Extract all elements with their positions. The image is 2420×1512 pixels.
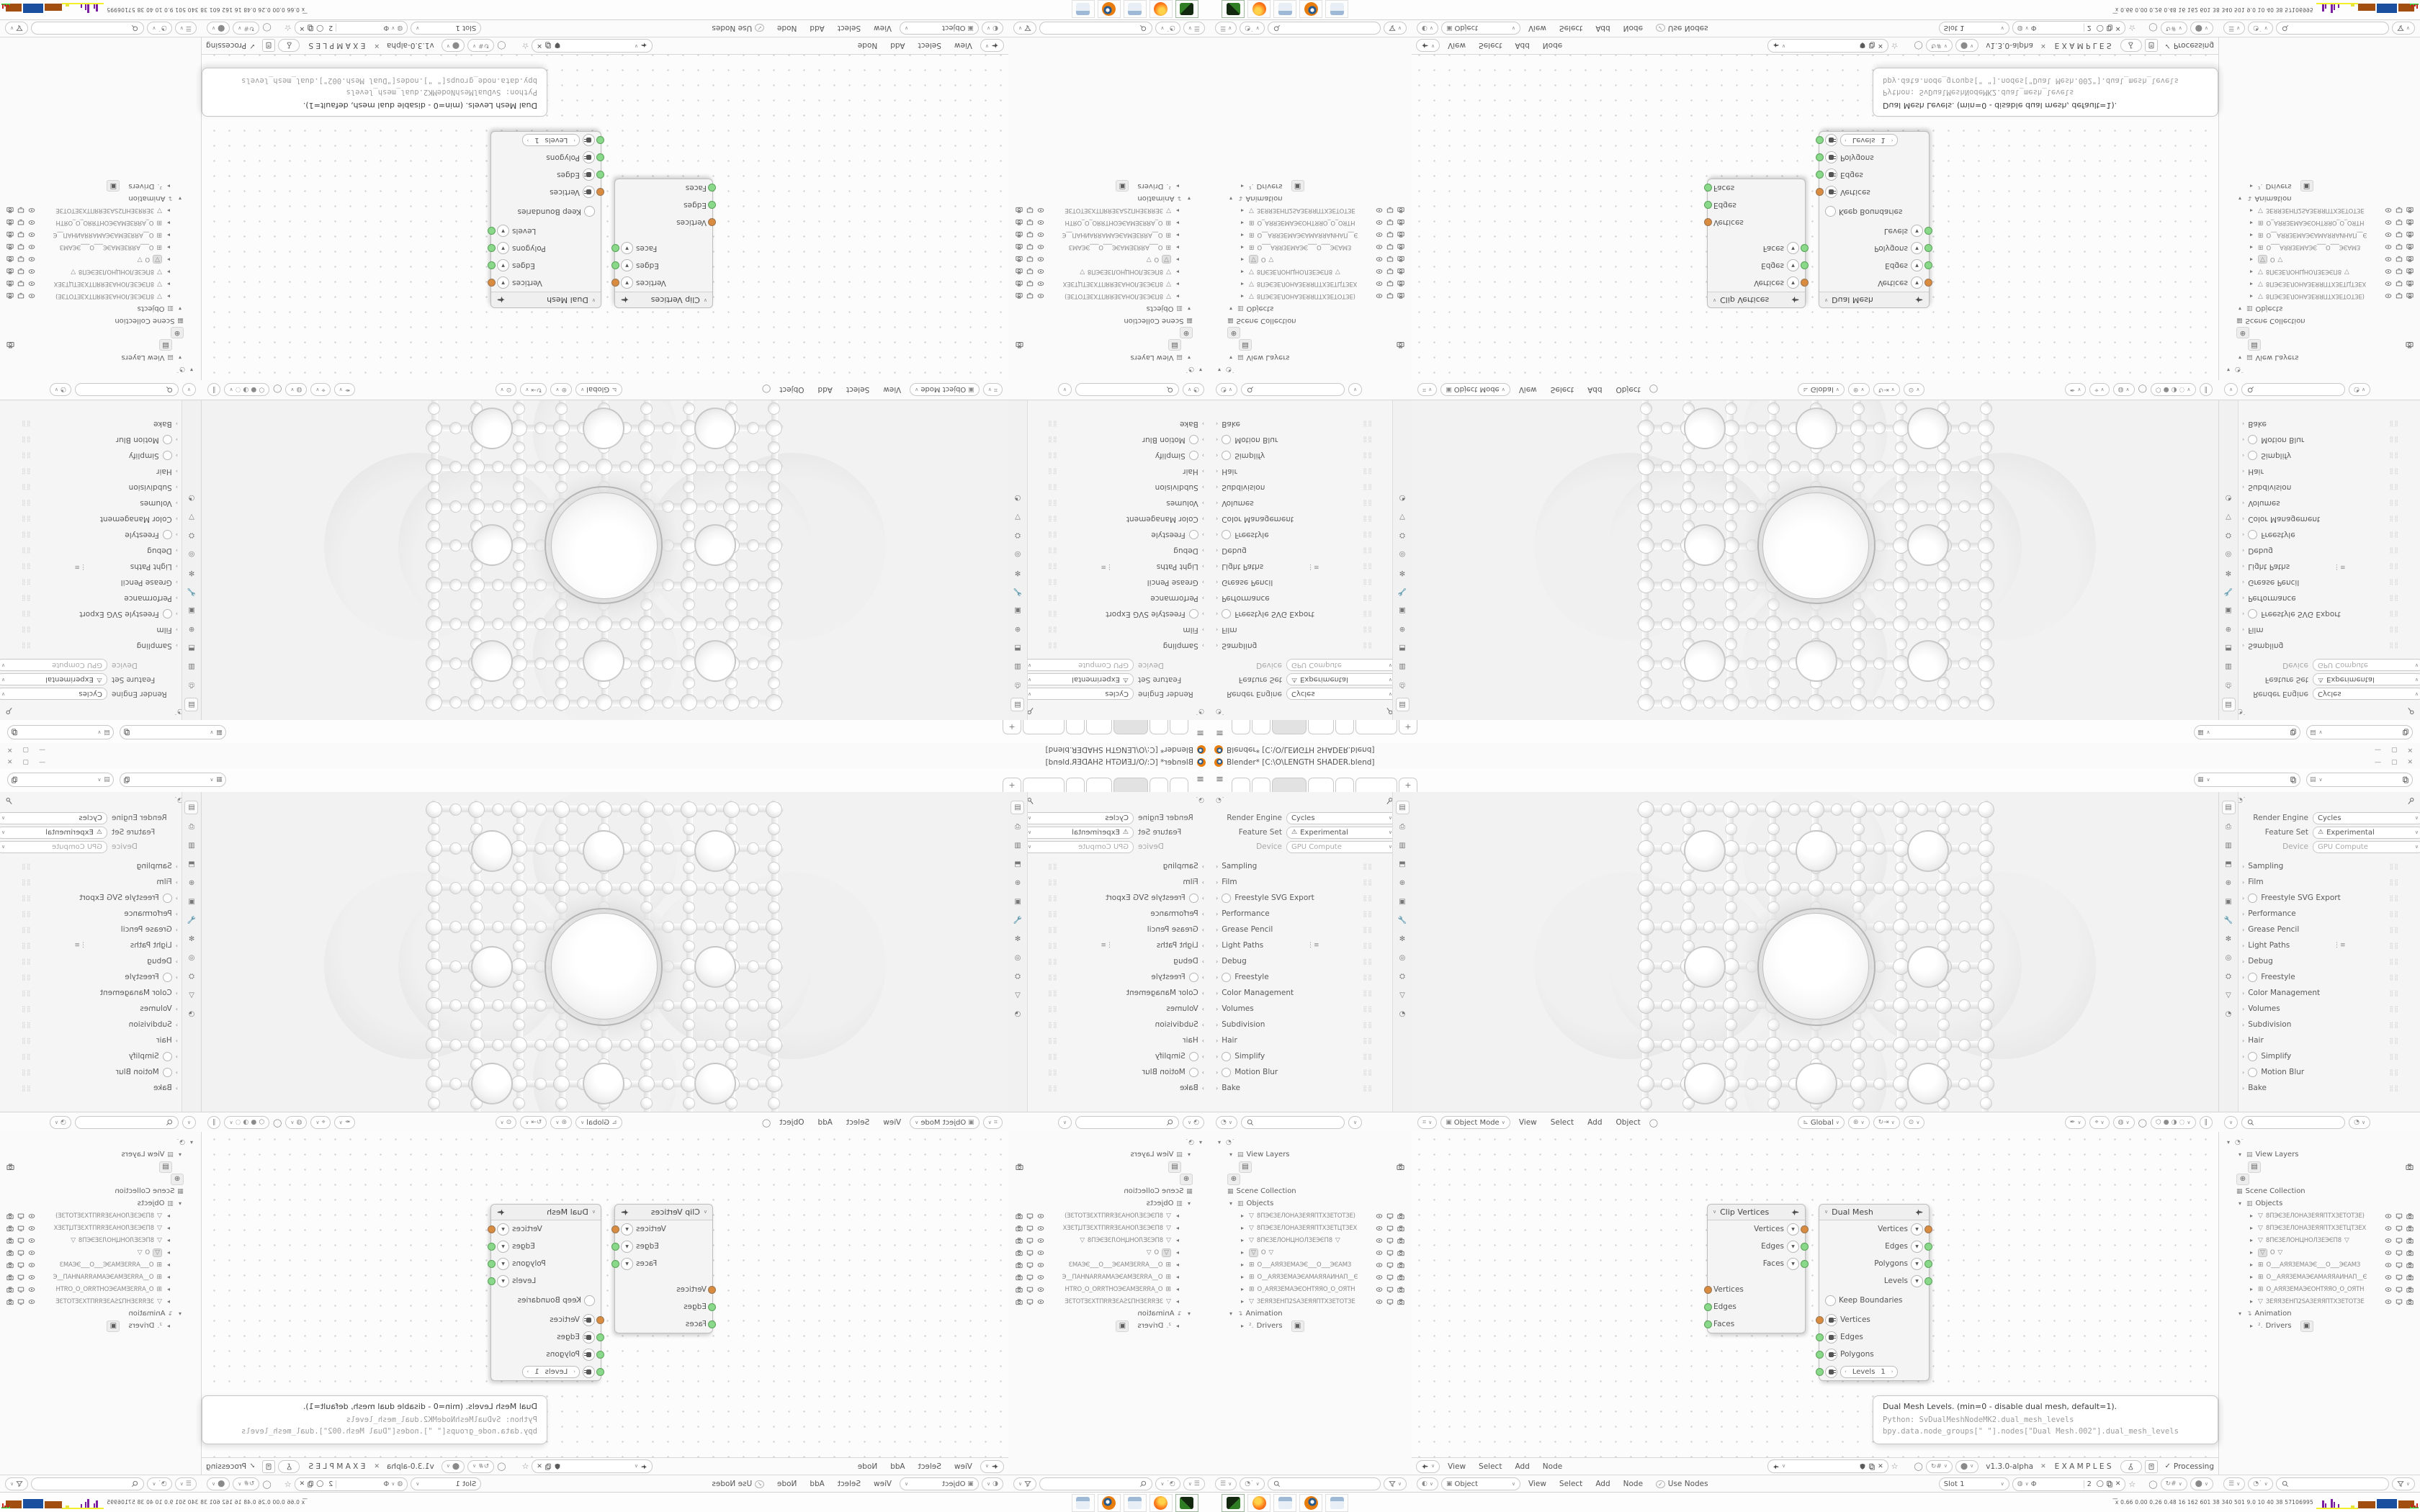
expand-icon[interactable]: ▸ xyxy=(2248,1286,2255,1292)
menu-object[interactable]: Object xyxy=(1616,1118,1641,1127)
props-tab-scene[interactable]: ⬒ xyxy=(186,642,198,654)
orientation-dropdown[interactable]: ⊾Global∨ xyxy=(1798,1116,1845,1129)
levels-spinner[interactable]: ‹Levels1› xyxy=(1840,1366,1898,1378)
output-dropdown[interactable]: ▼ xyxy=(1911,243,1923,255)
flask-button[interactable] xyxy=(2120,1460,2142,1473)
expand-icon[interactable]: ▸ xyxy=(165,1323,172,1329)
menu-view[interactable]: View xyxy=(1448,42,1466,50)
props-section-simplify[interactable]: ›Simplify⣿⣿ xyxy=(1047,448,1204,464)
menu-node[interactable]: Node xyxy=(1623,1480,1643,1488)
outliner-view-layer-button[interactable]: ▤ xyxy=(2,339,172,351)
menu-add[interactable]: Add xyxy=(890,42,905,50)
output-dropdown[interactable]: ▼ xyxy=(1911,277,1923,289)
input-socket[interactable] xyxy=(1816,171,1824,179)
field-value-dropdown[interactable]: Cycles∨ xyxy=(1286,688,1397,701)
menu-view[interactable]: View xyxy=(874,24,892,32)
material-slot-dropdown[interactable]: Slot 1∨ xyxy=(411,22,481,35)
props-section-volumes[interactable]: ›Volumes⣿⣿ xyxy=(1047,495,1204,511)
output-dropdown[interactable]: ▼ xyxy=(1911,1241,1923,1253)
props-tab-material[interactable]: ◔ xyxy=(1012,1008,1024,1020)
field-value-dropdown[interactable]: GPU Compute∨ xyxy=(1286,841,1397,853)
shader-editor-type-button[interactable]: ◐∨ xyxy=(1417,22,1438,35)
props-section-subdivision[interactable]: ›Subdivision⣿⣿ xyxy=(1216,480,1373,495)
outliner-object-row[interactable]: ▸▽8ПЭЄЗЕЛОНАЗЕЯЯПТХЗЕТОТЗЕ) xyxy=(2248,1210,2418,1222)
expand-icon[interactable]: ▸ xyxy=(165,1286,172,1292)
editor-nav-dropdown[interactable]: ↻#∨ xyxy=(233,1477,259,1490)
expand-icon[interactable]: ▸ xyxy=(1239,232,1246,238)
expand-icon[interactable]: ▸ xyxy=(1174,281,1181,287)
outliner-object-row[interactable]: ▸⊞O__АЯЯЗЕМАЭЄАМАЯЯАИНАП__Є xyxy=(2,229,172,241)
material-slot-dropdown[interactable]: Slot 1∨ xyxy=(411,1477,481,1490)
props-section-freestyle[interactable]: ›Freestyle⣿⣿ xyxy=(1216,527,1373,543)
props-tab-physics[interactable]: ◎ xyxy=(1397,548,1409,560)
display-mode-dropdown[interactable]: ☰∨ xyxy=(1215,1477,1237,1490)
menu-add[interactable]: Add xyxy=(890,1462,905,1471)
outliner-object-row[interactable]: ▸▽ЗЕЯЯЗЕНП2SАЗЕЯЯПТХЗЕТОТЗЕ xyxy=(2248,1295,2418,1308)
section-checkbox[interactable] xyxy=(163,451,172,461)
outliner-scene-row[interactable]: ▾◔˙ xyxy=(1011,1136,1204,1148)
menu-select[interactable]: Select xyxy=(918,42,941,50)
expand-icon[interactable]: ▸ xyxy=(165,1237,172,1243)
outliner-filter-type-button[interactable]: ◔˙∨ xyxy=(2248,1477,2272,1490)
unlink-icon[interactable]: ✕ xyxy=(300,1480,305,1488)
mode-dropdown[interactable]: ▣Object Mode∨ xyxy=(1440,383,1510,396)
field-value-dropdown[interactable]: ⚠Experimental∨ xyxy=(2313,674,2420,686)
outliner-animation-branch[interactable]: ▾↴Animation xyxy=(2236,192,2418,204)
props-section-film[interactable]: ›Film⣿⣿ xyxy=(2242,622,2399,638)
expand-icon[interactable]: ▸ xyxy=(2248,293,2255,300)
props-section-film[interactable]: ›Film⣿⣿ xyxy=(21,622,178,638)
proportional-edit[interactable]: ↻⇥∨ xyxy=(520,1116,547,1129)
node-dual-mesh[interactable]: ∨Dual MeshVertices▼Edges▼Polygons▼Levels… xyxy=(1819,131,1930,308)
close-button[interactable]: ✕ xyxy=(7,759,13,766)
props-tab-world[interactable]: ⊕ xyxy=(1012,877,1024,889)
outliner-view-layers[interactable]: ▾▤View Layers xyxy=(2,351,184,364)
props-tab-scene[interactable]: ⬒ xyxy=(2223,642,2235,654)
props-tab-output[interactable]: ⎙ xyxy=(186,821,198,833)
props-tab-physics[interactable]: ◎ xyxy=(2223,548,2235,560)
output-socket[interactable] xyxy=(611,279,619,287)
material-selector[interactable]: ◍∨Φ2◯✕ xyxy=(2012,1477,2126,1491)
workspace-tab[interactable] xyxy=(1149,778,1168,792)
snap-circle[interactable]: ◯ xyxy=(497,41,506,50)
props-tab-object[interactable]: ▣ xyxy=(1397,604,1409,616)
props-section-debug[interactable]: ›Debug⣿⣿ xyxy=(21,543,178,559)
workspace-tab[interactable] xyxy=(1335,778,1354,792)
outliner-objects-branch[interactable]: ▾▥Objects xyxy=(1227,302,1409,315)
log-button[interactable] xyxy=(262,40,275,53)
props-section-sampling[interactable]: ›Sampling⣿⣿ xyxy=(2242,858,2399,874)
props-section-film[interactable]: ›Film⣿⣿ xyxy=(1047,622,1204,638)
field-value-dropdown[interactable]: Cycles∨ xyxy=(1286,812,1397,824)
props-tab-object-data[interactable]: ▽ xyxy=(186,510,198,523)
view-layer-combo[interactable]: ▤∨ xyxy=(2306,725,2413,739)
section-checkbox[interactable] xyxy=(2248,451,2257,461)
props-tab-particles[interactable]: ✻ xyxy=(2223,933,2235,945)
options-circle[interactable]: ◯ xyxy=(762,385,771,395)
new-workspace-tab[interactable]: + xyxy=(1399,720,1417,734)
pin-tree-toggle[interactable]: ☆ xyxy=(1891,41,1899,50)
expand-icon[interactable]: ▸ xyxy=(2248,1323,2255,1329)
new-material-icon[interactable]: ◯ xyxy=(316,1480,323,1488)
props-section-performance[interactable]: ›Performance⣿⣿ xyxy=(1047,906,1204,922)
node-dual-mesh[interactable]: ∨Dual MeshVertices▼Edges▼Polygons▼Levels… xyxy=(1819,1204,1930,1381)
outliner-drivers-row[interactable]: ▸²․Drivers▣ xyxy=(1011,180,1181,192)
outliner-world-button[interactable]: ⊕ xyxy=(1011,1173,1193,1185)
workspace-tab[interactable] xyxy=(1170,778,1188,792)
viewport-editor-type-button[interactable]: ⌗∨ xyxy=(983,1116,1003,1129)
expand-icon[interactable]: ▸ xyxy=(1174,293,1181,300)
input-socket[interactable] xyxy=(1816,153,1824,161)
output-socket[interactable] xyxy=(488,1260,496,1268)
expand-icon[interactable]: ▸ xyxy=(165,1274,172,1280)
drivers-button[interactable]: ▣ xyxy=(1291,181,1304,192)
taskbar-app-blender[interactable] xyxy=(1098,1494,1121,1512)
pin-tree-toggle[interactable]: ☆ xyxy=(1891,1462,1899,1471)
section-checkbox[interactable] xyxy=(1222,1068,1231,1077)
outliner-scene-collection[interactable]: ▦Scene Collection xyxy=(2,315,184,327)
section-checkbox[interactable] xyxy=(163,894,172,903)
props-tab-output[interactable]: ⎙ xyxy=(1397,821,1409,833)
material-slot-dropdown[interactable]: Slot 1∨ xyxy=(1939,22,2009,35)
props-section-volumes[interactable]: ›Volumes⣿⣿ xyxy=(2242,495,2399,511)
output-socket[interactable] xyxy=(488,244,496,252)
properties-editor-type-button[interactable]: ◔∨ xyxy=(50,383,71,396)
node-header[interactable]: ∨Dual Mesh xyxy=(491,292,601,307)
proportional-edit[interactable]: ↻⇥∨ xyxy=(1873,383,1900,396)
input-socket[interactable] xyxy=(596,136,604,144)
display-dropdown[interactable]: ⬤∨ xyxy=(207,22,230,35)
drivers-button[interactable]: ▣ xyxy=(2300,1320,2313,1332)
expand-icon[interactable]: ▸ xyxy=(1239,1286,1246,1292)
close-icon[interactable]: ✕ xyxy=(1878,42,1883,50)
input-socket[interactable] xyxy=(708,218,716,226)
expand-icon[interactable]: ▸ xyxy=(165,1261,172,1268)
scene-combo[interactable]: ▦∨ xyxy=(2194,725,2300,739)
expand-icon[interactable]: ▸ xyxy=(1174,1237,1181,1243)
overlays-dropdown[interactable]: ◍∨ xyxy=(2113,1116,2135,1129)
outliner-view-layers[interactable]: ▾▤View Layers xyxy=(2,1148,184,1161)
image-icon[interactable]: ▤ xyxy=(1239,340,1252,351)
expand-icon[interactable]: ▸ xyxy=(165,256,172,263)
props-section-light-paths[interactable]: ›Light Paths⋮≡⣿⣿ xyxy=(21,937,178,953)
input-socket[interactable] xyxy=(1704,218,1712,226)
outliner-filter-button[interactable]: ∨ xyxy=(5,22,28,35)
props-tab-render[interactable]: ▤ xyxy=(1011,801,1025,814)
expand-icon[interactable]: ▸ xyxy=(1174,269,1181,275)
props-section-film[interactable]: ›Film⣿⣿ xyxy=(21,874,178,890)
props-section-film[interactable]: ›Film⣿⣿ xyxy=(1216,622,1373,638)
input-socket[interactable] xyxy=(708,1320,716,1328)
menu-node[interactable]: Node xyxy=(1623,24,1643,32)
props-section-color-management[interactable]: ›Color Management⣿⣿ xyxy=(2242,511,2399,527)
output-dropdown[interactable]: ▼ xyxy=(1787,1223,1799,1236)
properties-filter-button[interactable]: ∨ xyxy=(2224,383,2238,396)
props-tab-material[interactable]: ◔ xyxy=(186,492,198,504)
use-nodes-toggle[interactable]: ✓Use Nodes xyxy=(1656,24,1708,32)
unlink-icon[interactable]: ✕ xyxy=(374,42,380,50)
properties-search-input[interactable] xyxy=(1075,1116,1179,1129)
props-section-grease-pencil[interactable]: ›Grease Pencil⣿⣿ xyxy=(21,922,178,937)
shading-icon[interactable]: ◌ xyxy=(2179,1119,2185,1126)
props-section-volumes[interactable]: ›Volumes⣿⣿ xyxy=(1216,1001,1373,1017)
menu-add[interactable]: Add xyxy=(817,1118,832,1127)
output-dropdown[interactable]: ▼ xyxy=(621,1258,633,1270)
section-checkbox[interactable] xyxy=(1189,1068,1198,1077)
section-checkbox[interactable] xyxy=(163,610,172,619)
socket-menu-button[interactable] xyxy=(1825,1331,1837,1344)
taskbar-app-firefox[interactable] xyxy=(1149,0,1173,18)
props-tab-view-layer[interactable]: ▥ xyxy=(2223,660,2235,672)
props-section-bake[interactable]: ›Bake⣿⣿ xyxy=(21,1080,178,1096)
outliner-object-row[interactable]: ▸⊞O_АЯЯЗЕМАЭЄОНТЯЯО_O_ОЯТН xyxy=(1011,217,1181,229)
node-header[interactable]: ∨Clip Vertices xyxy=(1708,292,1805,307)
props-section-color-management[interactable]: ›Color Management⣿⣿ xyxy=(21,511,178,527)
use-nodes-toggle[interactable]: ✓Use Nodes xyxy=(1656,1480,1708,1488)
output-socket[interactable] xyxy=(611,261,619,269)
outliner-object-row[interactable]: ▸▽8ПЭЄЗЕЛОНАЗЕЯЯПТХЗЕТЦТЗЕХ xyxy=(2,278,172,290)
world-icon[interactable]: ⊕ xyxy=(1227,1174,1240,1185)
material-selector[interactable]: ◍∨Φ2◯✕ xyxy=(295,22,408,35)
levels-spinner[interactable]: ‹Levels1› xyxy=(1840,135,1898,147)
props-section-sampling[interactable]: ›Sampling⣿⣿ xyxy=(21,858,178,874)
shader-mode-dropdown[interactable]: ▣Object∨ xyxy=(900,1477,979,1490)
node-clip-vertices[interactable]: ∨Clip VerticesVertices▼Edges▼Faces▼Verti… xyxy=(1707,179,1806,308)
input-socket[interactable] xyxy=(596,1368,604,1376)
props-tab-object-data[interactable]: ▽ xyxy=(2223,510,2235,523)
props-section-color-management[interactable]: ›Color Management⣿⣿ xyxy=(1047,985,1204,1001)
shading-icon[interactable]: ◑ xyxy=(2172,386,2177,393)
input-socket[interactable] xyxy=(1816,1351,1824,1359)
expand-icon[interactable]: ▸ xyxy=(1239,281,1246,287)
shader-mode-dropdown[interactable]: ▣Object∨ xyxy=(1441,1477,1520,1490)
props-tab-view-layer[interactable]: ▥ xyxy=(1397,660,1409,672)
properties-editor-type-button[interactable]: ◔∨ xyxy=(2349,383,2370,396)
display-mode-dropdown[interactable]: ☰∨ xyxy=(1215,22,1237,35)
maximize-button[interactable]: ▢ xyxy=(23,746,30,753)
close-button[interactable]: ✕ xyxy=(7,746,13,753)
expand-icon[interactable]: ▸ xyxy=(1174,256,1181,263)
overlays-dropdown[interactable]: ◍∨ xyxy=(2113,383,2135,396)
field-value-dropdown[interactable]: GPU Compute∨ xyxy=(1286,660,1397,672)
workspace-tab[interactable] xyxy=(1335,720,1354,734)
menu-view[interactable]: View xyxy=(1519,385,1537,394)
props-tab-output[interactable]: ⎙ xyxy=(1397,679,1409,691)
section-checkbox[interactable] xyxy=(1222,610,1231,619)
output-socket[interactable] xyxy=(1924,1277,1932,1285)
props-tab-output[interactable]: ⎙ xyxy=(2223,821,2235,833)
input-socket[interactable] xyxy=(1704,1303,1712,1311)
shading-icon[interactable]: ● xyxy=(251,1119,256,1126)
outliner-object-row[interactable]: ▸▽8ПЭЄЗЕЛОНАЗЕЯЯПТХЗЕТОТЗЕ) xyxy=(2,290,172,302)
editor-nav-dropdown[interactable]: ↻#∨ xyxy=(1926,1460,1953,1473)
props-tab-render[interactable]: ▤ xyxy=(185,698,199,711)
props-tab-physics[interactable]: ◎ xyxy=(186,548,198,560)
field-value-dropdown[interactable]: GPU Compute∨ xyxy=(0,660,107,672)
props-section-light-paths[interactable]: ›Light Paths⋮≡⣿⣿ xyxy=(2242,937,2399,953)
output-dropdown[interactable]: ▼ xyxy=(621,260,633,272)
outliner-view-layers[interactable]: ▾▤View Layers xyxy=(1227,1148,1409,1161)
examples-menu[interactable]: E X A M P L E S xyxy=(2055,42,2112,50)
props-tab-object[interactable]: ▣ xyxy=(1012,896,1024,908)
expand-icon[interactable]: ▸ xyxy=(1239,293,1246,300)
output-dropdown[interactable]: ▼ xyxy=(1911,260,1923,272)
menu-view[interactable]: View xyxy=(1528,1480,1546,1488)
maximize-button[interactable]: ▢ xyxy=(2391,746,2398,753)
properties-search-input[interactable] xyxy=(75,383,179,396)
outliner-filter-type-button[interactable]: ◔˙∨ xyxy=(1155,22,1180,35)
output-socket[interactable] xyxy=(1801,1243,1809,1251)
node-header[interactable]: ∨Clip Vertices xyxy=(615,1205,712,1220)
menu-object[interactable]: Object xyxy=(779,385,804,394)
close-icon[interactable]: ✕ xyxy=(537,1463,542,1470)
node-editor-type-button[interactable]: ∨ xyxy=(980,1460,1004,1473)
props-section-film[interactable]: ›Film⣿⣿ xyxy=(2242,874,2399,890)
props-section-subdivision[interactable]: ›Subdivision⣿⣿ xyxy=(1047,1017,1204,1032)
mode-dropdown[interactable]: ▣Object Mode∨ xyxy=(910,383,980,396)
socket-menu-button[interactable] xyxy=(1825,1349,1837,1361)
menu-view[interactable]: View xyxy=(1519,1118,1537,1127)
pivot-dropdown[interactable]: ⊙∨ xyxy=(1904,383,1925,396)
outliner-object-row[interactable]: ▸⊞O__АЯЯЗЕМАЭЄАМАЯЯАИНАП__Є xyxy=(1011,1271,1181,1283)
expand-icon[interactable]: ▸ xyxy=(1174,1286,1181,1292)
node-header[interactable]: ∨Dual Mesh xyxy=(1819,292,1929,307)
outliner-view-layer-button[interactable]: ▤ xyxy=(1011,1161,1181,1173)
input-socket[interactable] xyxy=(1816,1368,1824,1376)
image-icon[interactable]: ▤ xyxy=(1239,1161,1252,1173)
new-material-icon[interactable]: ◯ xyxy=(316,24,323,32)
section-checkbox[interactable] xyxy=(163,973,172,982)
drivers-button[interactable]: ▣ xyxy=(1116,181,1129,192)
props-tab-view-layer[interactable]: ▥ xyxy=(1397,840,1409,852)
menu-select[interactable]: Select xyxy=(918,1462,941,1471)
properties-filter-button[interactable]: ∨ xyxy=(1348,383,1362,396)
props-tab-world[interactable]: ⊕ xyxy=(1012,623,1024,635)
socket-menu-button[interactable] xyxy=(1825,135,1837,147)
props-tab-material[interactable]: ◔ xyxy=(1397,492,1409,504)
outliner-object-row[interactable]: ▸▽O▽ xyxy=(1239,1246,1409,1259)
menu-node[interactable]: Node xyxy=(1543,42,1562,50)
node-editor[interactable]: Dual Mesh Levels. (min=0 - disable dual … xyxy=(202,1132,1008,1475)
taskbar-app-calculator[interactable] xyxy=(1325,0,1348,18)
section-checkbox[interactable] xyxy=(163,436,172,445)
output-socket[interactable] xyxy=(611,1243,619,1251)
outliner-object-row[interactable]: ▸▽8ПЭЄЗЕЛОНАЗЕЯЯПТХЗЕТЦТЗЕХ xyxy=(2248,278,2418,290)
view-layer-combo[interactable]: ▤∨ xyxy=(7,773,114,787)
taskbar-app-gpu-monitor[interactable] xyxy=(1175,0,1198,18)
props-tab-particles[interactable]: ✻ xyxy=(1397,567,1409,579)
outliner-objects-branch[interactable]: ▾▥Objects xyxy=(1227,1197,1409,1210)
gizmo-dropdown[interactable]: ⌖∨ xyxy=(2089,1116,2109,1129)
pause-button[interactable]: ‖ xyxy=(207,1116,221,1129)
output-socket[interactable] xyxy=(1801,279,1809,287)
section-checkbox[interactable] xyxy=(163,1052,172,1061)
props-tab-particles[interactable]: ✻ xyxy=(186,933,198,945)
menu-icon[interactable]: ≡ xyxy=(1216,727,1224,738)
node-editor[interactable]: Dual Mesh Levels. (min=0 - disable dual … xyxy=(202,37,1008,380)
visibility-dropdown[interactable]: ✒∨ xyxy=(334,1116,356,1129)
close-button[interactable]: ✕ xyxy=(2407,746,2413,753)
socket-menu-button[interactable] xyxy=(583,152,595,164)
outliner-drivers-row[interactable]: ▸²․Drivers▣ xyxy=(2,1320,172,1332)
props-section-motion-blur[interactable]: ›Motion Blur⣿⣿ xyxy=(21,1064,178,1080)
outliner-object-row[interactable]: ▸⊞O___АЯЯЗЕМАЭЄ___O___ЭЄАМЗ xyxy=(1239,1259,1409,1271)
props-section-freestyle-svg-export[interactable]: ›Freestyle SVG Export⣿⣿ xyxy=(1047,890,1204,906)
outliner-search-input[interactable] xyxy=(1039,1477,1152,1490)
material-selector[interactable]: ◍∨Φ2◯✕ xyxy=(295,1477,408,1491)
section-checkbox[interactable] xyxy=(1222,973,1231,982)
shader-editor-type-button[interactable]: ◐∨ xyxy=(982,1477,1003,1490)
outliner-object-row[interactable]: ▸▽8ПЄЗЕЛОНЦНОЛЗЕЭЄП8▽ xyxy=(2,266,172,278)
outliner-search-input[interactable] xyxy=(1268,1477,1381,1490)
snap-circle[interactable]: ◯ xyxy=(2148,24,2157,33)
props-section-grease-pencil[interactable]: ›Grease Pencil⣿⣿ xyxy=(1047,575,1204,590)
shader-editor-type-button[interactable]: ◐∨ xyxy=(982,22,1003,35)
display-mode-dropdown[interactable]: ☰∨ xyxy=(175,22,197,35)
input-socket[interactable] xyxy=(1816,1333,1824,1341)
props-tab-scene[interactable]: ⬒ xyxy=(2223,858,2235,870)
workspace-tab[interactable] xyxy=(1308,778,1334,792)
props-tab-render[interactable]: ▤ xyxy=(1396,801,1410,814)
properties-search-input[interactable] xyxy=(1241,383,1345,396)
mode-dropdown[interactable]: ▣Object Mode∨ xyxy=(910,1116,980,1129)
menu-object[interactable]: Object xyxy=(779,1118,804,1127)
outliner-object-row[interactable]: ▸▽8ПЄЗЕЛОНЦНОЛЗЕЭЄП8▽ xyxy=(2248,266,2418,278)
outliner-filter-type-button[interactable]: ◔˙∨ xyxy=(2248,22,2272,35)
outliner-view-layer-button[interactable]: ▤ xyxy=(2,1161,172,1173)
props-section-motion-blur[interactable]: ›Motion Blur⣿⣿ xyxy=(1047,432,1204,448)
drivers-button[interactable]: ▣ xyxy=(1116,1320,1129,1332)
shading-icon[interactable]: ◑ xyxy=(243,1119,248,1126)
outliner-search-input[interactable] xyxy=(1268,22,1381,35)
menu-select[interactable]: Select xyxy=(1479,42,1502,50)
section-checkbox[interactable] xyxy=(2248,973,2257,982)
visibility-dropdown[interactable]: ✒∨ xyxy=(334,383,356,396)
props-section-debug[interactable]: ›Debug⣿⣿ xyxy=(1047,543,1204,559)
image-icon[interactable]: ▤ xyxy=(1168,1161,1181,1173)
outliner-filter-type-button[interactable]: ◔˙∨ xyxy=(1240,22,1264,35)
node-tree-selector[interactable]: ∨✕ xyxy=(1767,1459,1888,1473)
expand-icon[interactable]: ▸ xyxy=(2248,1298,2255,1305)
props-tab-modifiers[interactable]: 🔧 xyxy=(186,914,198,927)
outliner-objects-branch[interactable]: ▾▥Objects xyxy=(2,1197,184,1210)
props-tab-object-data[interactable]: ▽ xyxy=(1012,989,1024,1002)
node-tree-selector[interactable]: ∨✕ xyxy=(532,39,653,53)
outliner-object-row[interactable]: ▸⊞O___АЯЯЗЕМАЭЄ___O___ЭЄАМЗ xyxy=(2248,1259,2418,1271)
close-icon[interactable]: ✕ xyxy=(1878,1463,1883,1470)
expand-icon[interactable]: ▸ xyxy=(1239,1274,1246,1280)
properties-editor-type-button[interactable]: ◔∨ xyxy=(1183,1116,1204,1129)
outliner-object-row[interactable]: ▸▽ЗЕЯЯЗЕНП2SАЗЕЯЯПТХЗЕТОТЗЕ xyxy=(2,1295,172,1308)
close-button[interactable]: ✕ xyxy=(2407,759,2413,766)
props-tab-output[interactable]: ⎙ xyxy=(1012,821,1024,833)
shading-mode-group[interactable]: ⬡●◑◌∨ xyxy=(225,1116,270,1129)
expand-icon[interactable]: ▸ xyxy=(2248,1212,2255,1219)
outliner-objects-branch[interactable]: ▾▥Objects xyxy=(2,302,184,315)
outliner-view-layer-button[interactable]: ▤ xyxy=(1011,339,1181,351)
menu-view[interactable]: View xyxy=(954,42,972,50)
properties-editor-type-button[interactable]: ◔∨ xyxy=(1216,383,1237,396)
outliner-filter-button[interactable]: ∨ xyxy=(5,1477,28,1490)
props-tab-physics[interactable]: ◎ xyxy=(1012,548,1024,560)
properties-search-input[interactable] xyxy=(1241,1116,1345,1129)
log-button[interactable] xyxy=(2145,1460,2158,1473)
props-tab-object[interactable]: ▣ xyxy=(1012,604,1024,616)
minimize-button[interactable]: — xyxy=(39,759,45,766)
field-value-dropdown[interactable]: Cycles∨ xyxy=(0,812,107,824)
taskbar-app-calculator[interactable] xyxy=(1273,0,1296,18)
outliner-scene-collection[interactable]: ▦Scene Collection xyxy=(2236,315,2418,327)
